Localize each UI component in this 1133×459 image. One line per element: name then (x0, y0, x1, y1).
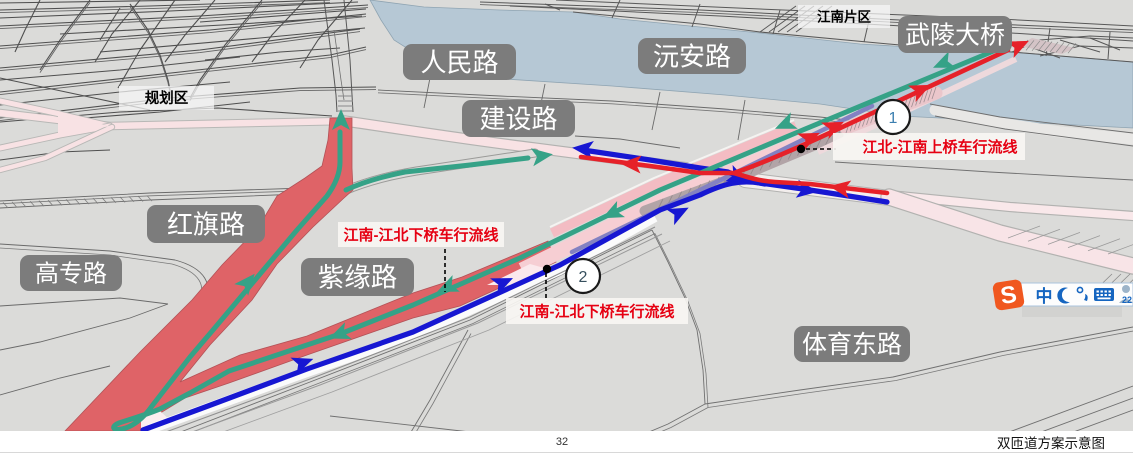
svg-text:人民路: 人民路 (420, 47, 498, 77)
svg-text:1: 1 (889, 110, 898, 127)
svg-text:32: 32 (556, 436, 568, 448)
svg-text:规划区: 规划区 (145, 89, 189, 107)
svg-text:武陵大桥: 武陵大桥 (905, 22, 1005, 50)
svg-text:2: 2 (579, 269, 588, 286)
svg-text:建设路: 建设路 (479, 104, 557, 134)
svg-text:高专路: 高专路 (35, 261, 107, 288)
svg-text:双匝道方案示意图: 双匝道方案示意图 (997, 435, 1105, 451)
svg-text:沅安路: 沅安路 (653, 41, 731, 71)
svg-text:江南-江北下桥车行流线: 江南-江北下桥车行流线 (344, 226, 499, 244)
svg-text:江南-江北下桥车行流线: 江南-江北下桥车行流线 (520, 302, 675, 320)
svg-text:江北-江南上桥车行流线: 江北-江南上桥车行流线 (863, 138, 1018, 156)
svg-text:22: 22 (1122, 295, 1132, 305)
svg-text:紫缘路: 紫缘路 (318, 263, 398, 293)
svg-text:红旗路: 红旗路 (167, 209, 245, 239)
svg-text:江南片区: 江南片区 (817, 8, 871, 24)
svg-text:中: 中 (1036, 286, 1053, 306)
svg-text:体育东路: 体育东路 (802, 331, 902, 359)
